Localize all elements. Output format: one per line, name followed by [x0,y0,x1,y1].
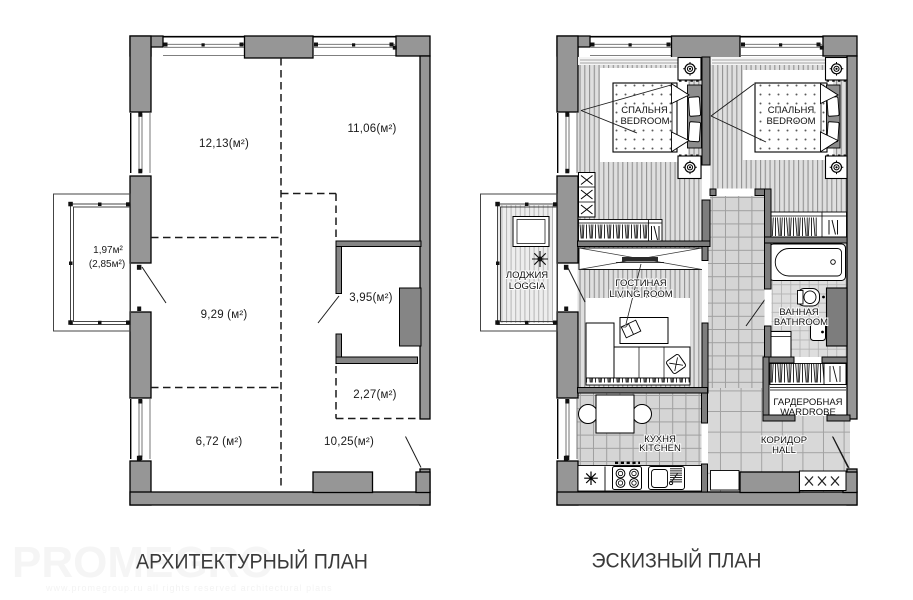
svg-text:BEDROOM: BEDROOM [620,116,669,127]
svg-text:(2,85м²): (2,85м²) [89,259,125,270]
svg-text:12,13(м²): 12,13(м²) [199,138,249,150]
svg-text:BEDROOM: BEDROOM [766,116,815,127]
svg-text:ГОСТИНАЯ: ГОСТИНАЯ [615,278,666,289]
svg-text:9,29 (м²): 9,29 (м²) [201,309,248,321]
svg-text:ЭСКИЗНЫЙ ПЛАН: ЭСКИЗНЫЙ ПЛАН [592,549,762,573]
svg-text:HALL: HALL [772,445,796,456]
svg-text:ЛОДЖИЯ: ЛОДЖИЯ [506,270,548,281]
svg-text:10,25(м²): 10,25(м²) [324,436,374,448]
svg-text:LOGGIA: LOGGIA [509,281,546,292]
svg-text:1,97м²: 1,97м² [93,245,123,256]
svg-text:6,72 (м²): 6,72 (м²) [196,436,243,448]
svg-text:www.promegroup.ru all rights: www.promegroup.ru all rights reserved ar… [45,583,333,593]
svg-text:2,27(м²): 2,27(м²) [353,389,396,401]
svg-text:3,95(м²): 3,95(м²) [349,292,392,304]
svg-text:СПАЛЬНЯ: СПАЛЬНЯ [621,105,668,116]
svg-text:11,06(м²): 11,06(м²) [347,123,396,135]
svg-text:СПАЛЬНЯ: СПАЛЬНЯ [768,105,815,116]
svg-text:BATHROOM: BATHROOM [774,317,828,328]
svg-text:LIVING ROOM: LIVING ROOM [609,289,672,300]
svg-text:KITCHEN: KITCHEN [639,443,681,454]
svg-text:АРХИТЕКТУРНЫЙ ПЛАН: АРХИТЕКТУРНЫЙ ПЛАН [136,550,368,574]
